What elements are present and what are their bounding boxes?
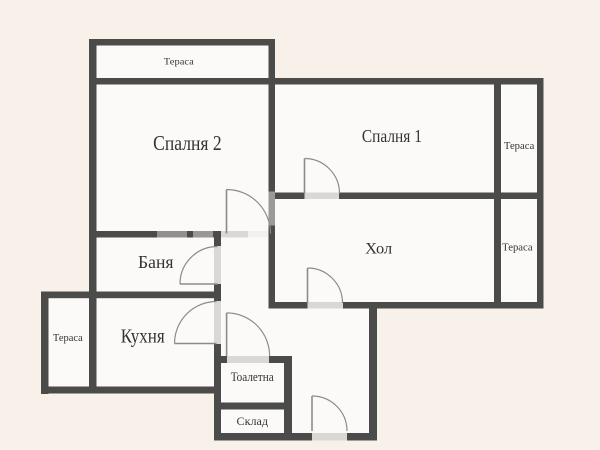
svg-text:Баня: Баня — [138, 252, 174, 272]
svg-text:Спалня 1: Спалня 1 — [362, 126, 422, 146]
svg-text:Кухня: Кухня — [121, 325, 165, 347]
svg-text:Тераса: Тераса — [504, 140, 535, 152]
svg-text:Тераса: Тераса — [53, 333, 83, 344]
svg-text:Спалня 2: Спалня 2 — [153, 131, 222, 155]
svg-text:Тераса: Тераса — [502, 241, 533, 253]
svg-text:Хол: Хол — [365, 240, 392, 257]
svg-text:Склад: Склад — [237, 416, 269, 428]
svg-text:Тераса: Тераса — [164, 57, 195, 67]
svg-text:Тоалетна: Тоалетна — [231, 369, 274, 384]
